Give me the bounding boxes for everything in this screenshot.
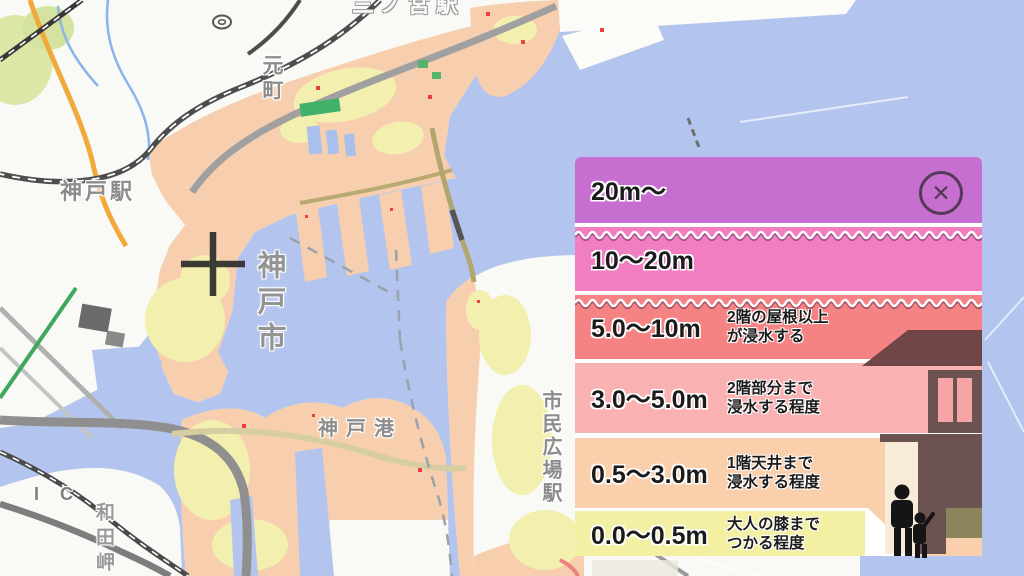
label-motomachi: 元町 [256, 54, 286, 104]
legend-range-label: 3.0～5.0m [591, 380, 727, 416]
label-interchange: I C [34, 484, 81, 505]
legend-range-label: 5.0～10m [591, 309, 727, 345]
legend-range-label: 20m～ [591, 172, 727, 208]
legend-range-label: 10～20m [591, 241, 727, 277]
legend-range-label: 0.5～3.0m [591, 455, 727, 491]
legend-description: 大人の膝までつかる程度 [727, 515, 820, 553]
legend-row-0-05m: 0.0～0.5m 大人の膝までつかる程度 [575, 511, 865, 556]
legend-close-button[interactable]: ✕ [919, 171, 963, 215]
label-kobe-city: 神戸市 [248, 250, 290, 358]
label-sannomiya-station: 三ノ宮駅 [352, 0, 464, 19]
hazard-map-viewport[interactable]: 三ノ宮駅 元町 神戸駅 神戸市 神戸港 市民広場駅 I C 和田岬 20m～ 1… [0, 0, 1024, 576]
label-kobe-port: 神戸港 [318, 412, 402, 441]
label-kobe-station: 神戸駅 [60, 174, 135, 206]
close-icon: ✕ [931, 182, 950, 205]
legend-description: 1階天井まで浸水する程度 [727, 454, 820, 492]
legend-description: 2階部分まで浸水する程度 [727, 379, 820, 417]
label-wadamisaki: 和田岬 [90, 502, 117, 576]
wave-separator [575, 229, 982, 241]
legend-depth-icons [858, 322, 984, 562]
legend-range-label: 0.0～0.5m [591, 516, 727, 552]
label-shimin-hiroba-station: 市民広場駅 [536, 390, 565, 505]
legend-row-10-20m: 10～20m [575, 227, 982, 291]
wave-separator [575, 297, 982, 309]
legend-description: 2階の屋根以上が浸水する [727, 308, 829, 346]
